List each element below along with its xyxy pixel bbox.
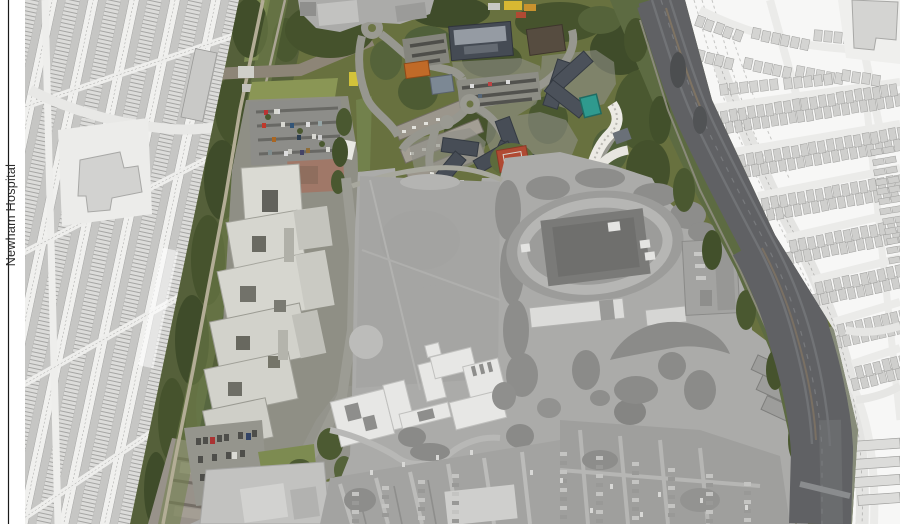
svg-text:Newham Hospital: Newham Hospital <box>4 164 18 266</box>
